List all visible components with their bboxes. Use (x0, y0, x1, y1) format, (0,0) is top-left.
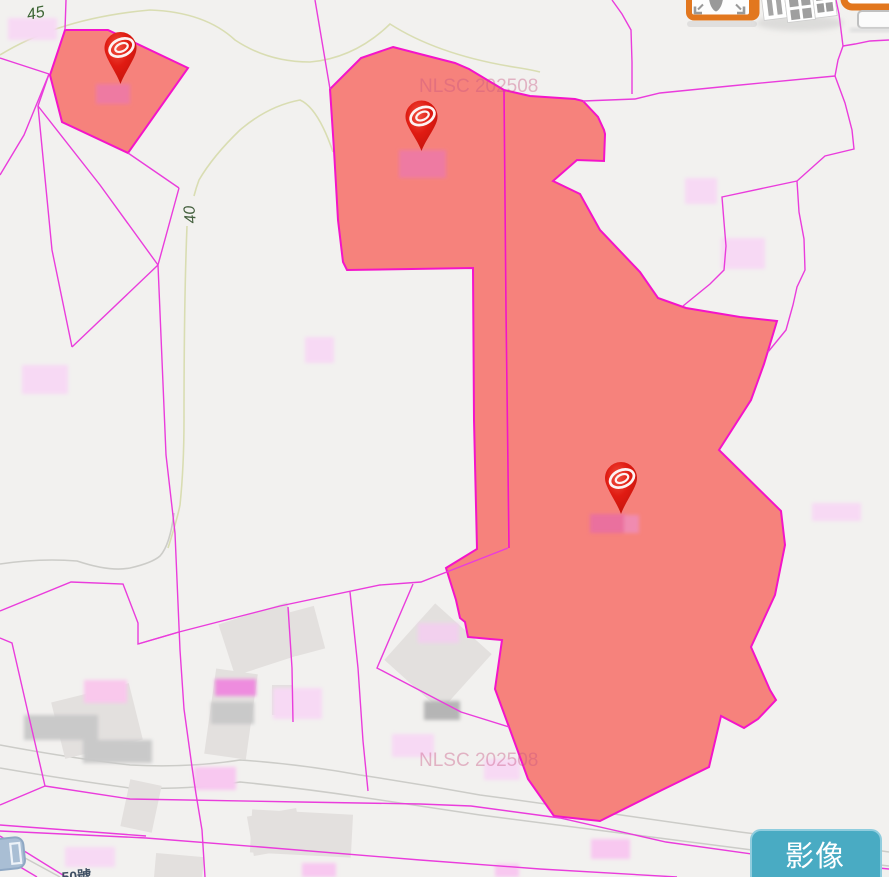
svg-text:影像: 影像 (785, 840, 845, 873)
svg-text:50號: 50號 (61, 867, 92, 877)
svg-text:NLSC 202508: NLSC 202508 (419, 750, 538, 771)
svg-text:40: 40 (181, 205, 200, 225)
svg-text:NLSC 202508: NLSC 202508 (419, 76, 538, 97)
svg-text:45: 45 (25, 4, 46, 24)
